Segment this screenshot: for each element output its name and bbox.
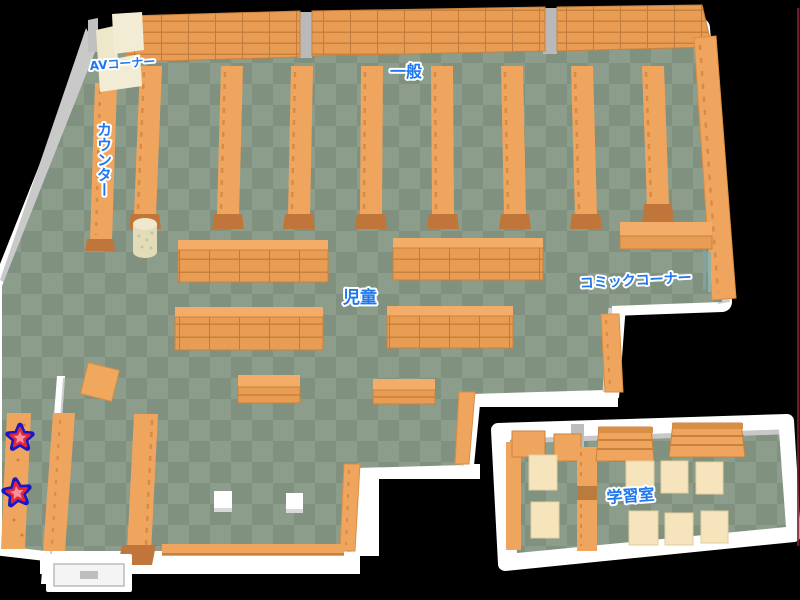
activity-table	[81, 363, 120, 402]
entrance-door	[46, 554, 132, 592]
study-top-shelf	[554, 434, 581, 461]
study-table	[696, 462, 723, 494]
wall-bookcase	[557, 5, 712, 51]
study-room-label: 学習室	[606, 485, 655, 507]
study-table	[629, 511, 658, 545]
counter-label: カウンター	[95, 122, 113, 197]
study-table	[531, 502, 559, 538]
stool	[286, 493, 303, 513]
study-wall-shelf	[506, 442, 521, 550]
study-table	[661, 461, 688, 493]
low-shelf	[373, 379, 435, 404]
stool	[214, 491, 232, 512]
study-table	[701, 511, 728, 543]
red-edge-line	[797, 8, 800, 546]
study-divider-shelf	[577, 447, 597, 551]
general-label: 一般	[390, 62, 422, 81]
comic-corner-shelf	[601, 314, 623, 392]
children-bookshelf	[175, 307, 323, 350]
children-label: 児童	[342, 287, 377, 308]
study-table	[529, 455, 557, 490]
basket-cylinder	[133, 218, 157, 258]
study-stepped-shelf	[669, 423, 745, 457]
study-top-shelf	[512, 431, 545, 457]
low-shelf	[238, 375, 300, 403]
bottom-wall-shelf	[162, 544, 344, 556]
comic-corner-shelf	[620, 222, 712, 249]
library-floor-map: AVコーナー 一般 カウンター 児童 コミックコーナー 学習室	[0, 0, 800, 600]
step-wall-3	[470, 392, 618, 407]
children-bookshelf	[387, 306, 513, 348]
study-table	[665, 513, 693, 545]
wall-bookcase	[312, 7, 545, 56]
study-stepped-shelf	[596, 427, 654, 461]
children-bookshelf	[178, 240, 328, 282]
children-bookshelf	[393, 238, 543, 280]
